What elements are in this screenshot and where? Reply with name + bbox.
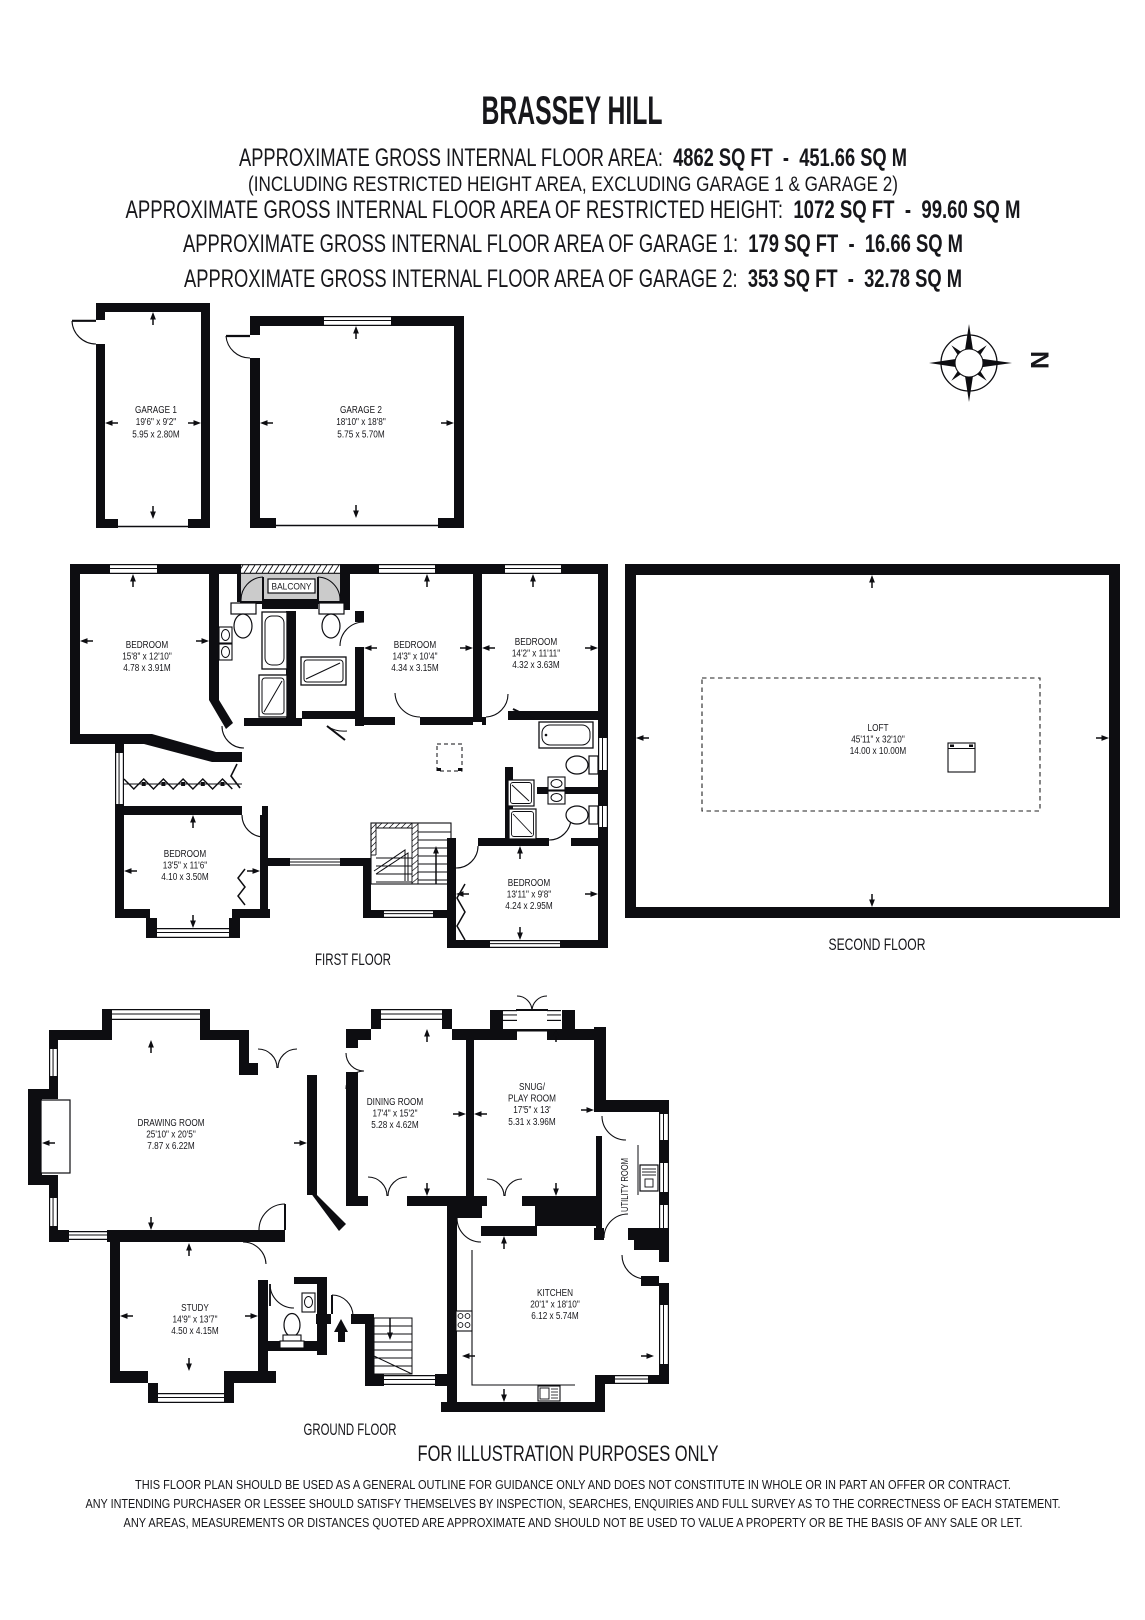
svg-text:(INCLUDING RESTRICTED HEIGHT A: (INCLUDING RESTRICTED HEIGHT AREA, EXCLU… [248,173,898,196]
svg-text:15'8" x 12'10": 15'8" x 12'10" [122,652,172,663]
svg-text:BALCONY: BALCONY [272,582,313,593]
svg-text:GARAGE 1: GARAGE 1 [135,405,177,416]
svg-text:SECOND FLOOR: SECOND FLOOR [829,935,926,954]
svg-text:14.00 x 10.00M: 14.00 x 10.00M [850,746,907,757]
svg-text:13'5" x 11'6": 13'5" x 11'6" [163,861,208,872]
svg-text:5.95 x 2.80M: 5.95 x 2.80M [132,429,179,440]
svg-text:THIS FLOOR PLAN SHOULD BE USED: THIS FLOOR PLAN SHOULD BE USED AS A GENE… [135,1477,1011,1492]
svg-text:7.87 x 6.22M: 7.87 x 6.22M [147,1141,194,1152]
svg-text:4.50 x 4.15M: 4.50 x 4.15M [171,1326,218,1337]
svg-text:14'3" x 10'4": 14'3" x 10'4" [393,652,438,663]
svg-text:LOFT: LOFT [868,723,889,734]
svg-text:25'10" x 20'5": 25'10" x 20'5" [146,1130,196,1141]
svg-text:APPROXIMATE GROSS INTERNAL FLO: APPROXIMATE GROSS INTERNAL FLOOR AREA: 4… [239,144,907,172]
svg-text:APPROXIMATE GROSS INTERNAL FLO: APPROXIMATE GROSS INTERNAL FLOOR AREA OF… [125,196,1020,224]
svg-text:APPROXIMATE GROSS INTERNAL FLO: APPROXIMATE GROSS INTERNAL FLOOR AREA OF… [184,265,962,293]
svg-text:14'9" x 13'7": 14'9" x 13'7" [173,1315,218,1326]
svg-text:5.28 x 4.62M: 5.28 x 4.62M [371,1120,418,1131]
svg-text:5.31 x 3.96M: 5.31 x 3.96M [508,1117,555,1128]
svg-text:DRAWING ROOM: DRAWING ROOM [137,1118,204,1129]
svg-text:4.24 x 2.95M: 4.24 x 2.95M [505,901,552,912]
svg-text:4.10 x 3.50M: 4.10 x 3.50M [161,872,208,883]
svg-text:4.32 x 3.63M: 4.32 x 3.63M [512,660,559,671]
svg-text:19'6" x 9'2": 19'6" x 9'2" [136,417,177,428]
svg-text:PLAY ROOM: PLAY ROOM [508,1094,556,1105]
svg-text:BEDROOM: BEDROOM [515,637,557,648]
svg-text:5.75 x 5.70M: 5.75 x 5.70M [337,429,384,440]
svg-text:18'10" x 18'8": 18'10" x 18'8" [336,417,386,428]
svg-text:DINING ROOM: DINING ROOM [367,1097,424,1108]
svg-text:4.34 x 3.15M: 4.34 x 3.15M [391,663,438,674]
svg-text:17'4" x 15'2": 17'4" x 15'2" [373,1109,418,1120]
svg-text:4.78 x 3.91M: 4.78 x 3.91M [123,663,170,674]
svg-text:GROUND FLOOR: GROUND FLOOR [304,1420,397,1439]
svg-text:KITCHEN: KITCHEN [537,1288,573,1299]
svg-text:14'2" x 11'11": 14'2" x 11'11" [512,649,561,660]
svg-text:STUDY: STUDY [181,1303,209,1314]
svg-text:FIRST FLOOR: FIRST FLOOR [315,950,391,969]
svg-text:ANY AREAS, MEASUREMENTS OR DIS: ANY AREAS, MEASUREMENTS OR DISTANCES QUO… [124,1515,1023,1530]
svg-text:BEDROOM: BEDROOM [126,640,168,651]
svg-text:BEDROOM: BEDROOM [394,640,436,651]
svg-text:45'11" x 32'10": 45'11" x 32'10" [851,735,905,746]
svg-text:UTILITY ROOM: UTILITY ROOM [619,1158,631,1212]
svg-text:BEDROOM: BEDROOM [164,849,206,860]
svg-text:17'5" x 13': 17'5" x 13' [513,1105,551,1116]
svg-text:APPROXIMATE GROSS INTERNAL FLO: APPROXIMATE GROSS INTERNAL FLOOR AREA OF… [183,230,963,258]
svg-text:ANY INTENDING PURCHASER OR LES: ANY INTENDING PURCHASER OR LESSEE SHOULD… [86,1496,1061,1511]
svg-text:SNUG/: SNUG/ [519,1082,545,1093]
svg-text:13'11" x 9'8": 13'11" x 9'8" [507,890,552,901]
svg-text:GARAGE 2: GARAGE 2 [340,405,382,416]
svg-text:20'1" x 18'10": 20'1" x 18'10" [530,1300,580,1311]
svg-text:BEDROOM: BEDROOM [508,878,550,889]
svg-text:N: N [1025,351,1053,369]
svg-text:FOR ILLUSTRATION PURPOSES ONLY: FOR ILLUSTRATION PURPOSES ONLY [418,1441,719,1466]
svg-text:6.12 x 5.74M: 6.12 x 5.74M [531,1311,578,1322]
svg-text:BRASSEY HILL: BRASSEY HILL [482,89,663,133]
